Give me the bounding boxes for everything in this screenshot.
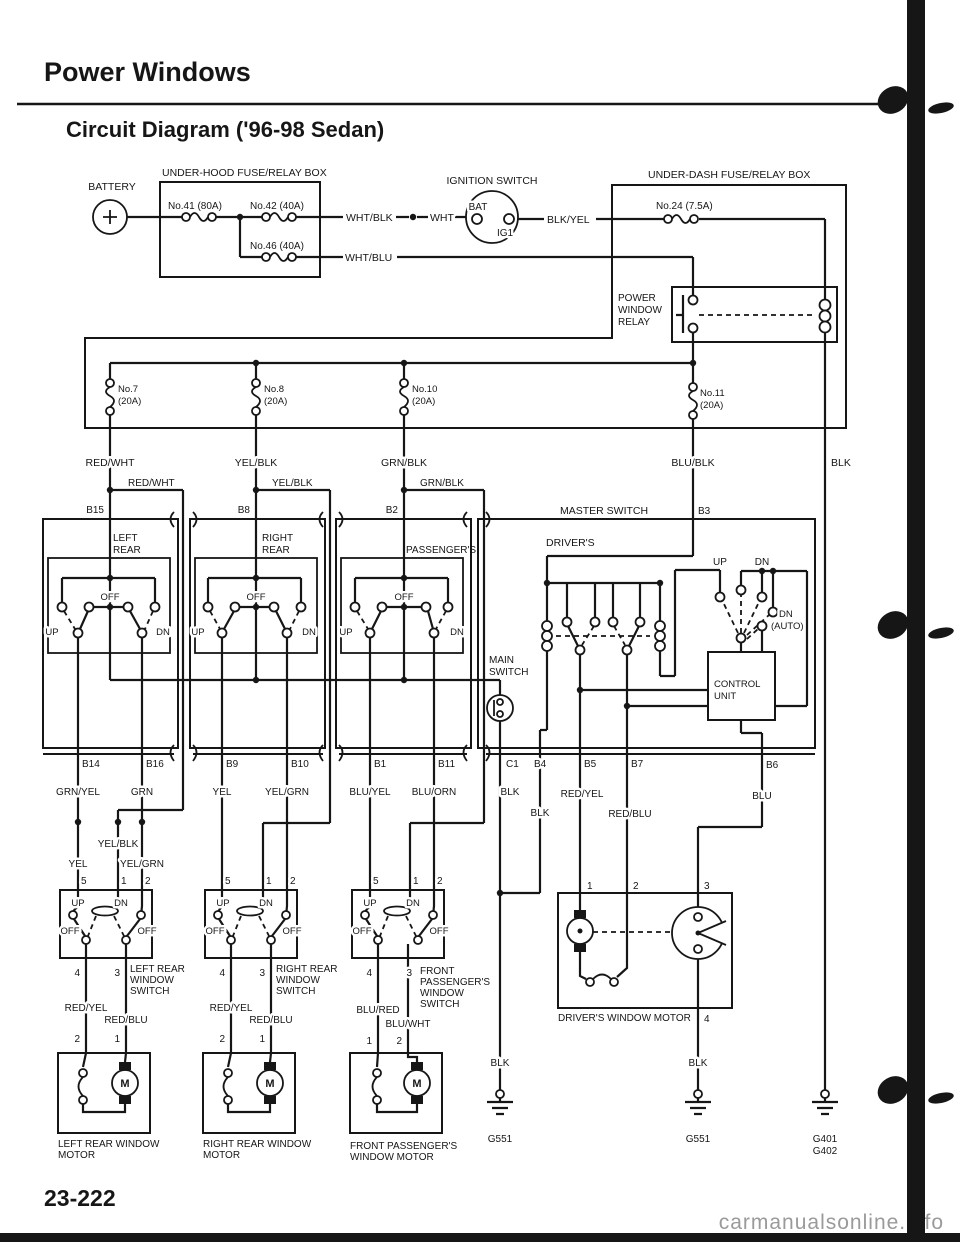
rr-sw-off-l: OFF	[206, 926, 225, 937]
connector-c1: C1	[506, 759, 519, 770]
fp-dn: DN	[450, 627, 464, 638]
wire-wht-blk: WHT/BLK	[346, 212, 393, 224]
rr-red-yel: RED/YEL	[210, 1003, 253, 1014]
window-motors	[79, 1062, 431, 1104]
wire-blu-blk: BLU/BLK	[671, 457, 714, 469]
rr-switch-name-2: WINDOW	[276, 975, 320, 986]
wire-yel-grn-b10: YEL/GRN	[265, 787, 309, 798]
rr-dn: DN	[302, 627, 316, 638]
wire-red-wht: RED/WHT	[86, 457, 136, 469]
connector-b5: B5	[584, 759, 597, 770]
wire-red-yel-b5: RED/YEL	[561, 789, 604, 800]
drivers-label: DRIVER'S	[546, 537, 595, 549]
rr-off: OFF	[247, 592, 266, 603]
control-unit-label-1: CONTROL	[714, 679, 760, 690]
relay-label-3: RELAY	[618, 317, 650, 328]
lr-dn: DN	[156, 627, 170, 638]
fp-switch-name-4: SWITCH	[420, 999, 459, 1010]
lr-mot-t2: 2	[74, 1034, 80, 1045]
door-switch-contacts	[69, 907, 437, 945]
wire-wht-blu: WHT/BLU	[345, 252, 392, 264]
ground-g402: G402	[813, 1146, 838, 1157]
fp-switch-name-1: FRONT	[420, 966, 454, 977]
connector-b2: B2	[386, 505, 399, 516]
rr-term5: 5	[225, 876, 231, 887]
connector-b14: B14	[82, 759, 100, 770]
fp-sw-off-r: OFF	[430, 926, 449, 937]
control-unit-label-2: UNIT	[714, 691, 736, 702]
ignition-switch-label: IGNITION SWITCH	[447, 175, 538, 187]
wire-yel-blk: YEL/BLK	[235, 457, 278, 469]
lr-term1: 1	[121, 876, 127, 887]
fp-term2: 2	[437, 876, 443, 887]
diagram-subtitle: Circuit Diagram ('96-98 Sedan)	[66, 117, 384, 142]
lr-term3: 3	[114, 968, 120, 979]
connector-b9: B9	[226, 759, 239, 770]
right-rear-title-1: RIGHT	[262, 533, 293, 544]
fuse7-label: No.7	[118, 384, 138, 395]
page-title: Power Windows	[44, 57, 251, 87]
left-rear-title-1: LEFT	[113, 533, 137, 544]
master-switch-label: MASTER SWITCH	[560, 505, 648, 517]
fuse10-label: No.10	[412, 384, 437, 395]
lr-red-yel: RED/YEL	[65, 1003, 108, 1014]
page-number: 23-222	[44, 1185, 116, 1211]
lr-motor-name-1: LEFT REAR WINDOW	[58, 1139, 160, 1150]
ground-g401: G401	[813, 1134, 838, 1145]
branch-yel-blk: YEL/BLK	[272, 478, 313, 489]
lr-motor-name-2: MOTOR	[58, 1150, 95, 1161]
rr-term2: 2	[290, 876, 296, 887]
right-rear-title-2: REAR	[262, 545, 290, 556]
wire-wht: WHT	[430, 212, 454, 224]
fuse10-amps: (20A)	[412, 396, 435, 407]
drv-dn-auto-2: (AUTO)	[771, 621, 804, 632]
drv-up: UP	[713, 557, 727, 568]
wire-blk-b4: BLK	[531, 808, 550, 819]
relay-label-2: WINDOW	[618, 305, 662, 316]
main-switch-label-1: MAIN	[489, 655, 514, 666]
connector-b8: B8	[238, 505, 251, 516]
drivers-window-motor	[567, 907, 727, 986]
connector-b11: B11	[438, 759, 455, 770]
lr-up: UP	[45, 627, 58, 638]
wire-blu-b6: BLU	[752, 791, 771, 802]
drv-motor-name: DRIVER'S WINDOW MOTOR	[558, 1013, 691, 1024]
fuse7-amps: (20A)	[118, 396, 141, 407]
rr-motor-m: M	[265, 1078, 274, 1090]
connector-b1: B1	[374, 759, 387, 770]
fuse11-amps: (20A)	[700, 400, 723, 411]
fuse42-label: No.42 (40A)	[250, 201, 304, 212]
lr-term2: 2	[145, 876, 151, 887]
connector-b16: B16	[146, 759, 164, 770]
lr-switch-name-1: LEFT REAR	[130, 964, 185, 975]
rr-motor-name-1: RIGHT REAR WINDOW	[203, 1139, 312, 1150]
underhood-box-label: UNDER-HOOD FUSE/RELAY BOX	[162, 167, 327, 179]
front-passenger-window-motor-box	[350, 1053, 442, 1133]
fp-term5: 5	[373, 876, 379, 887]
fp-term4: 4	[366, 968, 372, 979]
binding-bar	[873, 0, 955, 1233]
rr-sw-off-r: OFF	[283, 926, 302, 937]
ground-g551-2: G551	[686, 1134, 711, 1145]
battery-label: BATTERY	[88, 181, 135, 193]
lr-term5: 5	[81, 876, 87, 887]
wire-yel-splice: YEL	[69, 859, 88, 870]
battery-icon	[93, 200, 127, 234]
left-rear-window-motor-box	[58, 1053, 150, 1133]
lr-sw-off-l: OFF	[61, 926, 80, 937]
wire-blu-yel: BLU/YEL	[349, 787, 391, 798]
passenger-title: PASSENGER'S	[406, 545, 476, 556]
fuse8-amps: (20A)	[264, 396, 287, 407]
rr-red-blu: RED/BLU	[249, 1015, 292, 1026]
rr-switch-name-3: SWITCH	[276, 986, 315, 997]
wire-grn: GRN	[131, 787, 153, 798]
rr-term1: 1	[266, 876, 272, 887]
branch-red-wht: RED/WHT	[128, 478, 175, 489]
connector-b15: B15	[86, 505, 104, 516]
gnd1-blk: BLK	[491, 1058, 510, 1069]
wire-blk-yel: BLK/YEL	[547, 214, 590, 226]
rr-up: UP	[191, 627, 204, 638]
fp-motor-m: M	[412, 1078, 421, 1090]
branch-grn-blk: GRN/BLK	[420, 478, 464, 489]
wire-yel-blk-splice: YEL/BLK	[98, 839, 139, 850]
fp-motor-name-2: WINDOW MOTOR	[350, 1152, 434, 1163]
fp-sw-off-l: OFF	[353, 926, 372, 937]
drv-mot-t2: 2	[633, 881, 639, 892]
fp-switch-name-2: PASSENGER'S	[420, 977, 490, 988]
fp-term3: 3	[406, 968, 412, 979]
right-rear-window-motor-box	[203, 1053, 295, 1133]
lr-mot-t1: 1	[114, 1034, 120, 1045]
lr-red-blu: RED/BLU	[104, 1015, 147, 1026]
ground-g551-1: G551	[488, 1134, 513, 1145]
labels-layer: BATTERY UNDER-HOOD FUSE/RELAY BOX No.41 …	[45, 167, 850, 1163]
fuse24-label: No.24 (7.5A)	[656, 201, 713, 212]
ground-symbols	[496, 1090, 829, 1098]
left-rear-title-2: REAR	[113, 545, 141, 556]
rr-term4: 4	[219, 968, 225, 979]
fp-blu-red: BLU/RED	[356, 1005, 399, 1016]
fuse46-label: No.46 (40A)	[250, 241, 304, 252]
fuse11-label: No.11	[700, 388, 725, 399]
rr-mot-t2: 2	[219, 1034, 225, 1045]
lr-sw-dn: DN	[114, 898, 128, 909]
rr-sw-dn: DN	[259, 898, 273, 909]
main-switch-label-2: SWITCH	[489, 667, 528, 678]
fp-up: UP	[339, 627, 352, 638]
connector-b4: B4	[534, 759, 547, 770]
fp-blu-wht: BLU/WHT	[386, 1019, 431, 1030]
lr-switch-name-3: SWITCH	[130, 986, 169, 997]
drv-mot-t3: 3	[704, 881, 710, 892]
relay-label-1: POWER	[618, 293, 656, 304]
power-window-relay	[689, 296, 831, 333]
wire-yel-b9: YEL	[213, 787, 232, 798]
gnd2-blk: BLK	[689, 1058, 708, 1069]
rr-sw-up: UP	[216, 898, 229, 909]
wire-yel-grn-splice: YEL/GRN	[120, 859, 164, 870]
fp-mot-t1: 1	[366, 1036, 372, 1047]
connector-b6: B6	[766, 760, 779, 771]
fp-mot-t2: 2	[396, 1036, 402, 1047]
fp-term1: 1	[413, 876, 419, 887]
fuse8-label: No.8	[264, 384, 284, 395]
wiring-diagram: Power Windows Circuit Diagram ('96-98 Se…	[0, 0, 960, 1242]
wire-grn-blk: GRN/BLK	[381, 457, 427, 469]
lr-switch-name-2: WINDOW	[130, 975, 174, 986]
underdash-box-label: UNDER-DASH FUSE/RELAY BOX	[648, 169, 810, 181]
fp-switch-name-3: WINDOW	[420, 988, 464, 999]
rr-term3: 3	[259, 968, 265, 979]
bat-terminal-label: BAT	[469, 202, 488, 213]
connector-b3: B3	[698, 506, 711, 517]
drv-mot-t1: 1	[587, 881, 593, 892]
manual-page: Power Windows Circuit Diagram ('96-98 Se…	[0, 0, 960, 1242]
fuse41-label: No.41 (80A)	[168, 201, 222, 212]
fp-sw-up: UP	[363, 898, 376, 909]
header: Power Windows Circuit Diagram ('96-98 Se…	[17, 57, 889, 142]
rr-switch-name-1: RIGHT REAR	[276, 964, 338, 975]
rr-mot-t1: 1	[259, 1034, 265, 1045]
ig1-terminal-label: IG1	[497, 228, 514, 239]
fp-sw-dn: DN	[406, 898, 420, 909]
lr-sw-off-r: OFF	[138, 926, 157, 937]
lr-term4: 4	[74, 968, 80, 979]
drv-dn: DN	[755, 557, 769, 568]
fp-motor-name-1: FRONT PASSENGER'S	[350, 1141, 457, 1152]
drv-mot-t4: 4	[704, 1014, 710, 1025]
fuse-symbols	[106, 213, 698, 419]
connector-b7: B7	[631, 759, 644, 770]
master-switch-box	[478, 519, 815, 748]
lr-motor-m: M	[120, 1078, 129, 1090]
lr-off: OFF	[101, 592, 120, 603]
lr-sw-up: UP	[71, 898, 84, 909]
drv-dn-auto-1: DN	[779, 609, 793, 620]
wire-red-blu-b7: RED/BLU	[608, 809, 651, 820]
wire-blu-orn: BLU/ORN	[412, 787, 456, 798]
main-switch	[487, 695, 513, 721]
connector-b10: B10	[291, 759, 309, 770]
wire-blk-c1: BLK	[501, 787, 520, 798]
wire-blk-right: BLK	[831, 457, 851, 469]
rr-motor-name-2: MOTOR	[203, 1150, 240, 1161]
bottom-bar	[0, 1233, 960, 1242]
wire-grn-yel: GRN/YEL	[56, 787, 100, 798]
fp-off: OFF	[395, 592, 414, 603]
